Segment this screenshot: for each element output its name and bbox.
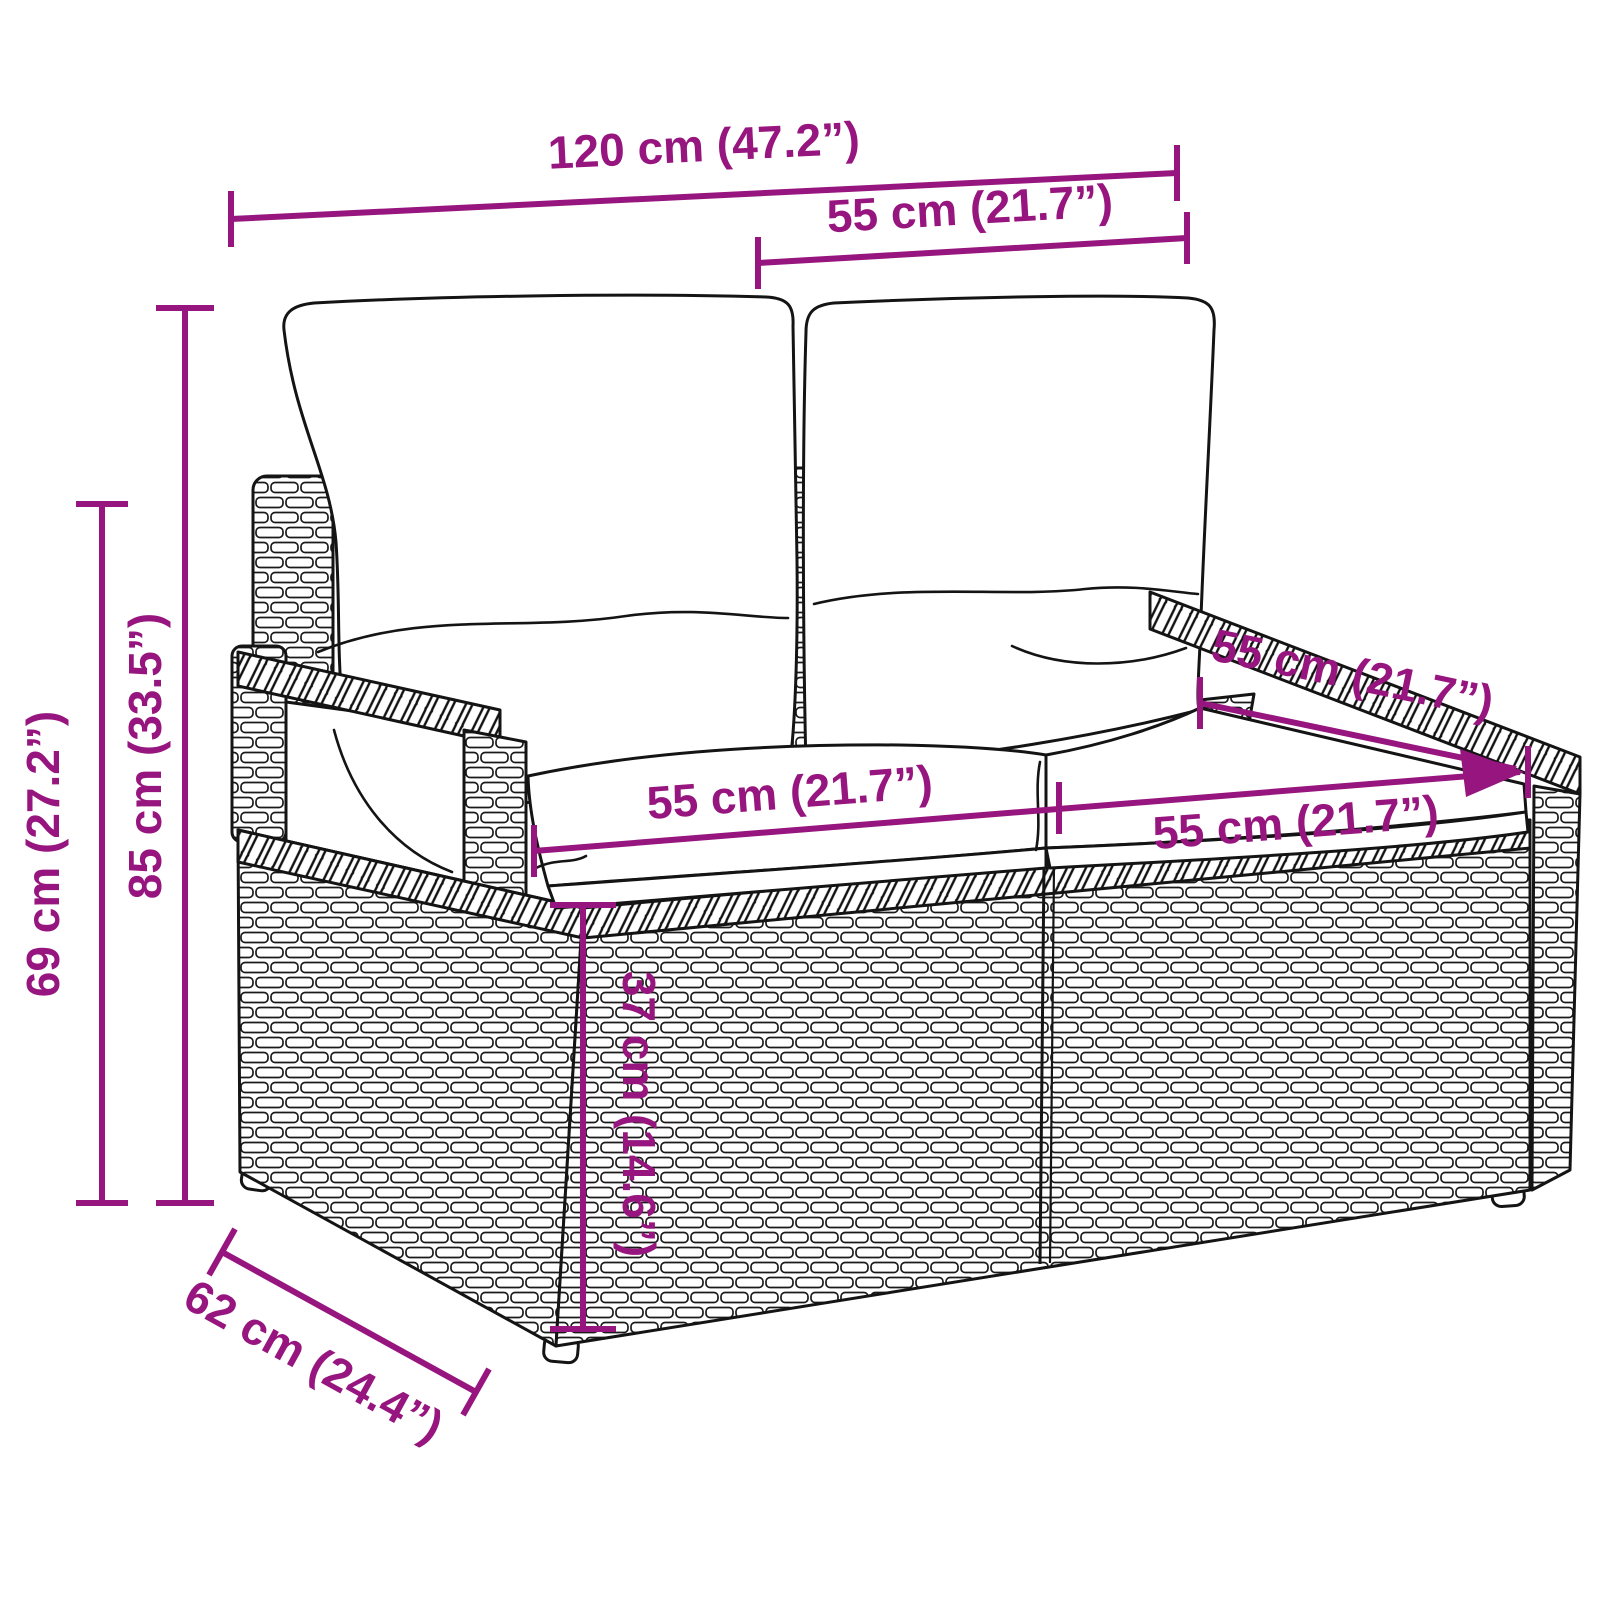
right-armrest-side-panel	[1532, 786, 1580, 1190]
product-dimension-diagram: 120 cm (47.2”) 55 cm (21.7”) 85 cm (33.5…	[0, 0, 1600, 1600]
dim-total-height-label: 85 cm (33.5”)	[119, 613, 171, 899]
dim-overall-width-label: 120 cm (47.2”)	[547, 112, 861, 179]
bench-base	[238, 820, 1530, 1346]
left-armrest-front-post	[464, 730, 526, 898]
dim-armrest-height-label: 69 cm (27.2”)	[17, 711, 69, 997]
back-cushion-right	[803, 296, 1214, 768]
dim-depth-label: 62 cm (24.4”)	[176, 1269, 452, 1453]
dim-seat-height-label: 37 cm (14.6”)	[613, 971, 665, 1257]
diagram-canvas: 120 cm (47.2”) 55 cm (21.7”) 85 cm (33.5…	[0, 0, 1600, 1600]
dim-armrest-height: 69 cm (27.2”)	[17, 504, 128, 1203]
dim-total-height: 85 cm (33.5”)	[119, 308, 214, 1203]
dim-back-width-label: 55 cm (21.7”)	[825, 174, 1114, 242]
